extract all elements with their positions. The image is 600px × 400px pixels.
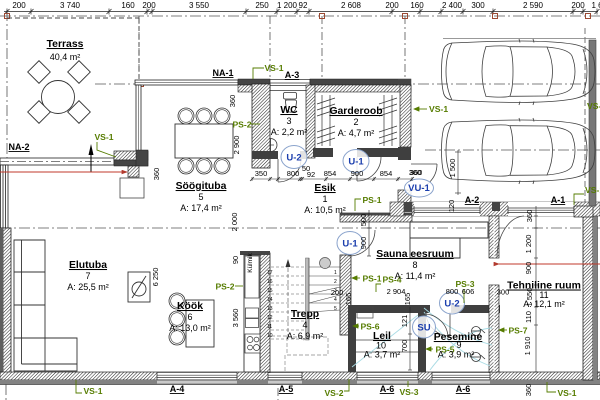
svg-text:900: 900: [524, 262, 533, 275]
svg-text:120: 120: [447, 200, 456, 213]
svg-text:200: 200: [142, 1, 156, 10]
svg-text:800: 800: [446, 287, 459, 296]
svg-text:1: 1: [334, 270, 337, 276]
svg-text:A: 6,9 m²: A: 6,9 m²: [287, 331, 324, 341]
svg-text:160: 160: [121, 1, 135, 10]
svg-text:PS-6: PS-6: [360, 322, 379, 332]
svg-text:900: 900: [359, 237, 368, 250]
svg-text:Elutuba: Elutuba: [69, 260, 107, 271]
svg-text:11: 11: [267, 324, 272, 330]
svg-text:4: 4: [302, 320, 307, 330]
svg-text:5: 5: [334, 306, 337, 312]
svg-text:VS-1: VS-1: [585, 185, 600, 195]
svg-text:A-6: A-6: [380, 384, 395, 394]
svg-text:8: 8: [412, 260, 417, 270]
svg-text:A-6: A-6: [456, 384, 471, 394]
svg-text:360: 360: [410, 168, 423, 177]
svg-text:4: 4: [334, 297, 337, 303]
svg-text:1 550: 1 550: [525, 288, 534, 307]
svg-text:700: 700: [400, 340, 409, 353]
svg-text:1: 1: [322, 194, 327, 204]
svg-text:PS-7: PS-7: [508, 326, 527, 336]
svg-text:A: 2,2 m²: A: 2,2 m²: [271, 127, 308, 137]
svg-text:2 608: 2 608: [341, 1, 362, 10]
svg-text:1 200: 1 200: [277, 1, 298, 10]
svg-text:NA-2: NA-2: [8, 142, 29, 152]
svg-text:854: 854: [324, 169, 337, 178]
svg-text:A: 25,5 m²: A: 25,5 m²: [67, 282, 109, 292]
svg-text:PS-1: PS-1: [362, 274, 381, 284]
svg-text:110: 110: [524, 311, 533, 323]
svg-text:606: 606: [462, 287, 475, 296]
svg-text:200: 200: [331, 288, 344, 297]
svg-text:200: 200: [385, 1, 399, 10]
svg-text:92: 92: [299, 1, 308, 10]
svg-text:12: 12: [267, 315, 273, 321]
svg-text:3: 3: [286, 116, 291, 126]
svg-text:VS-1: VS-1: [587, 101, 600, 111]
svg-text:Külmik: Külmik: [247, 253, 254, 273]
svg-text:3 740: 3 740: [60, 1, 81, 10]
svg-text:PS-1: PS-1: [362, 195, 381, 205]
svg-text:500: 500: [359, 214, 368, 227]
svg-text:Sauna eesruum: Sauna eesruum: [376, 249, 453, 260]
svg-text:2: 2: [353, 117, 358, 127]
svg-text:3 550: 3 550: [189, 1, 210, 10]
svg-text:90: 90: [231, 256, 240, 264]
svg-text:300: 300: [497, 288, 510, 297]
svg-text:92: 92: [307, 170, 315, 179]
svg-text:A: 17,4 m²: A: 17,4 m²: [180, 203, 222, 213]
svg-text:2 400: 2 400: [442, 1, 463, 10]
svg-text:2: 2: [334, 279, 337, 285]
svg-text:13: 13: [267, 306, 273, 312]
svg-text:1 200: 1 200: [524, 235, 533, 254]
svg-text:A-1: A-1: [551, 195, 566, 205]
svg-text:6 250: 6 250: [151, 268, 160, 287]
svg-text:VS-1: VS-1: [264, 63, 283, 73]
svg-text:854: 854: [380, 169, 393, 178]
svg-text:2 590: 2 590: [523, 1, 544, 10]
svg-text:1 500: 1 500: [448, 159, 457, 178]
svg-text:U-1: U-1: [348, 157, 364, 168]
svg-text:5: 5: [198, 192, 203, 202]
svg-text:Garderoob: Garderoob: [329, 106, 382, 117]
svg-text:250: 250: [255, 1, 269, 10]
svg-text:Köök: Köök: [177, 301, 203, 312]
svg-text:3 560: 3 560: [231, 309, 240, 328]
svg-text:15: 15: [267, 288, 273, 294]
svg-text:200: 200: [12, 1, 26, 10]
svg-text:16: 16: [267, 279, 273, 285]
svg-text:NA-1: NA-1: [212, 68, 233, 78]
svg-text:2 000: 2 000: [230, 213, 239, 232]
svg-text:A: 10,5 m²: A: 10,5 m²: [304, 205, 346, 215]
svg-text:A: 3,9 m²: A: 3,9 m²: [438, 350, 475, 360]
svg-text:9: 9: [456, 340, 461, 350]
svg-text:A-2: A-2: [465, 195, 480, 205]
svg-text:A-3: A-3: [285, 70, 300, 80]
svg-text:A: 11,4 m²: A: 11,4 m²: [395, 271, 436, 281]
svg-text:121: 121: [400, 315, 409, 328]
svg-text:VS-1: VS-1: [94, 132, 113, 142]
svg-text:360: 360: [524, 384, 533, 397]
svg-text:U-2: U-2: [286, 153, 301, 164]
svg-text:A: 3,7 m²: A: 3,7 m²: [364, 350, 401, 360]
svg-text:VS-2: VS-2: [324, 388, 343, 398]
svg-text:7: 7: [85, 271, 90, 281]
svg-text:A: 13,0 m²: A: 13,0 m²: [169, 323, 211, 333]
svg-text:360: 360: [525, 210, 534, 223]
svg-text:VS-3: VS-3: [399, 387, 418, 397]
svg-text:6: 6: [187, 312, 192, 322]
svg-text:200: 200: [571, 1, 585, 10]
svg-text:2 900: 2 900: [232, 136, 241, 155]
svg-text:VS-1: VS-1: [83, 386, 102, 396]
svg-text:Trepp: Trepp: [291, 309, 319, 320]
svg-text:PS-2: PS-2: [232, 120, 251, 130]
svg-text:Söögituba: Söögituba: [176, 181, 227, 192]
svg-text:SU: SU: [417, 323, 430, 334]
svg-text:WC: WC: [280, 105, 298, 116]
svg-text:A-5: A-5: [279, 384, 294, 394]
svg-text:14: 14: [267, 297, 273, 303]
svg-text:VS-1: VS-1: [429, 104, 448, 114]
svg-text:A: 4,7 m²: A: 4,7 m²: [338, 128, 375, 138]
svg-text:VU-1: VU-1: [408, 183, 430, 194]
svg-text:360: 360: [152, 168, 161, 181]
svg-text:165: 165: [344, 293, 353, 306]
svg-text:1 910: 1 910: [523, 337, 532, 356]
svg-text:Esik: Esik: [314, 183, 336, 194]
svg-text:40,4 m²: 40,4 m²: [50, 52, 81, 62]
svg-text:17: 17: [267, 270, 273, 276]
svg-text:300: 300: [471, 1, 485, 10]
svg-text:350: 350: [255, 169, 268, 178]
svg-text:Terrass: Terrass: [47, 39, 84, 50]
svg-text:360: 360: [228, 95, 237, 108]
svg-text:VS-1: VS-1: [557, 388, 576, 398]
svg-text:1 6: 1 6: [591, 1, 600, 10]
svg-text:U-1: U-1: [342, 239, 358, 250]
svg-text:160: 160: [410, 1, 424, 10]
svg-text:U-2: U-2: [444, 299, 459, 310]
svg-text:A-4: A-4: [170, 384, 185, 394]
svg-text:165: 165: [403, 293, 412, 306]
svg-text:800: 800: [287, 169, 300, 178]
svg-text:PS-2: PS-2: [215, 282, 234, 292]
svg-text:900: 900: [351, 169, 364, 178]
